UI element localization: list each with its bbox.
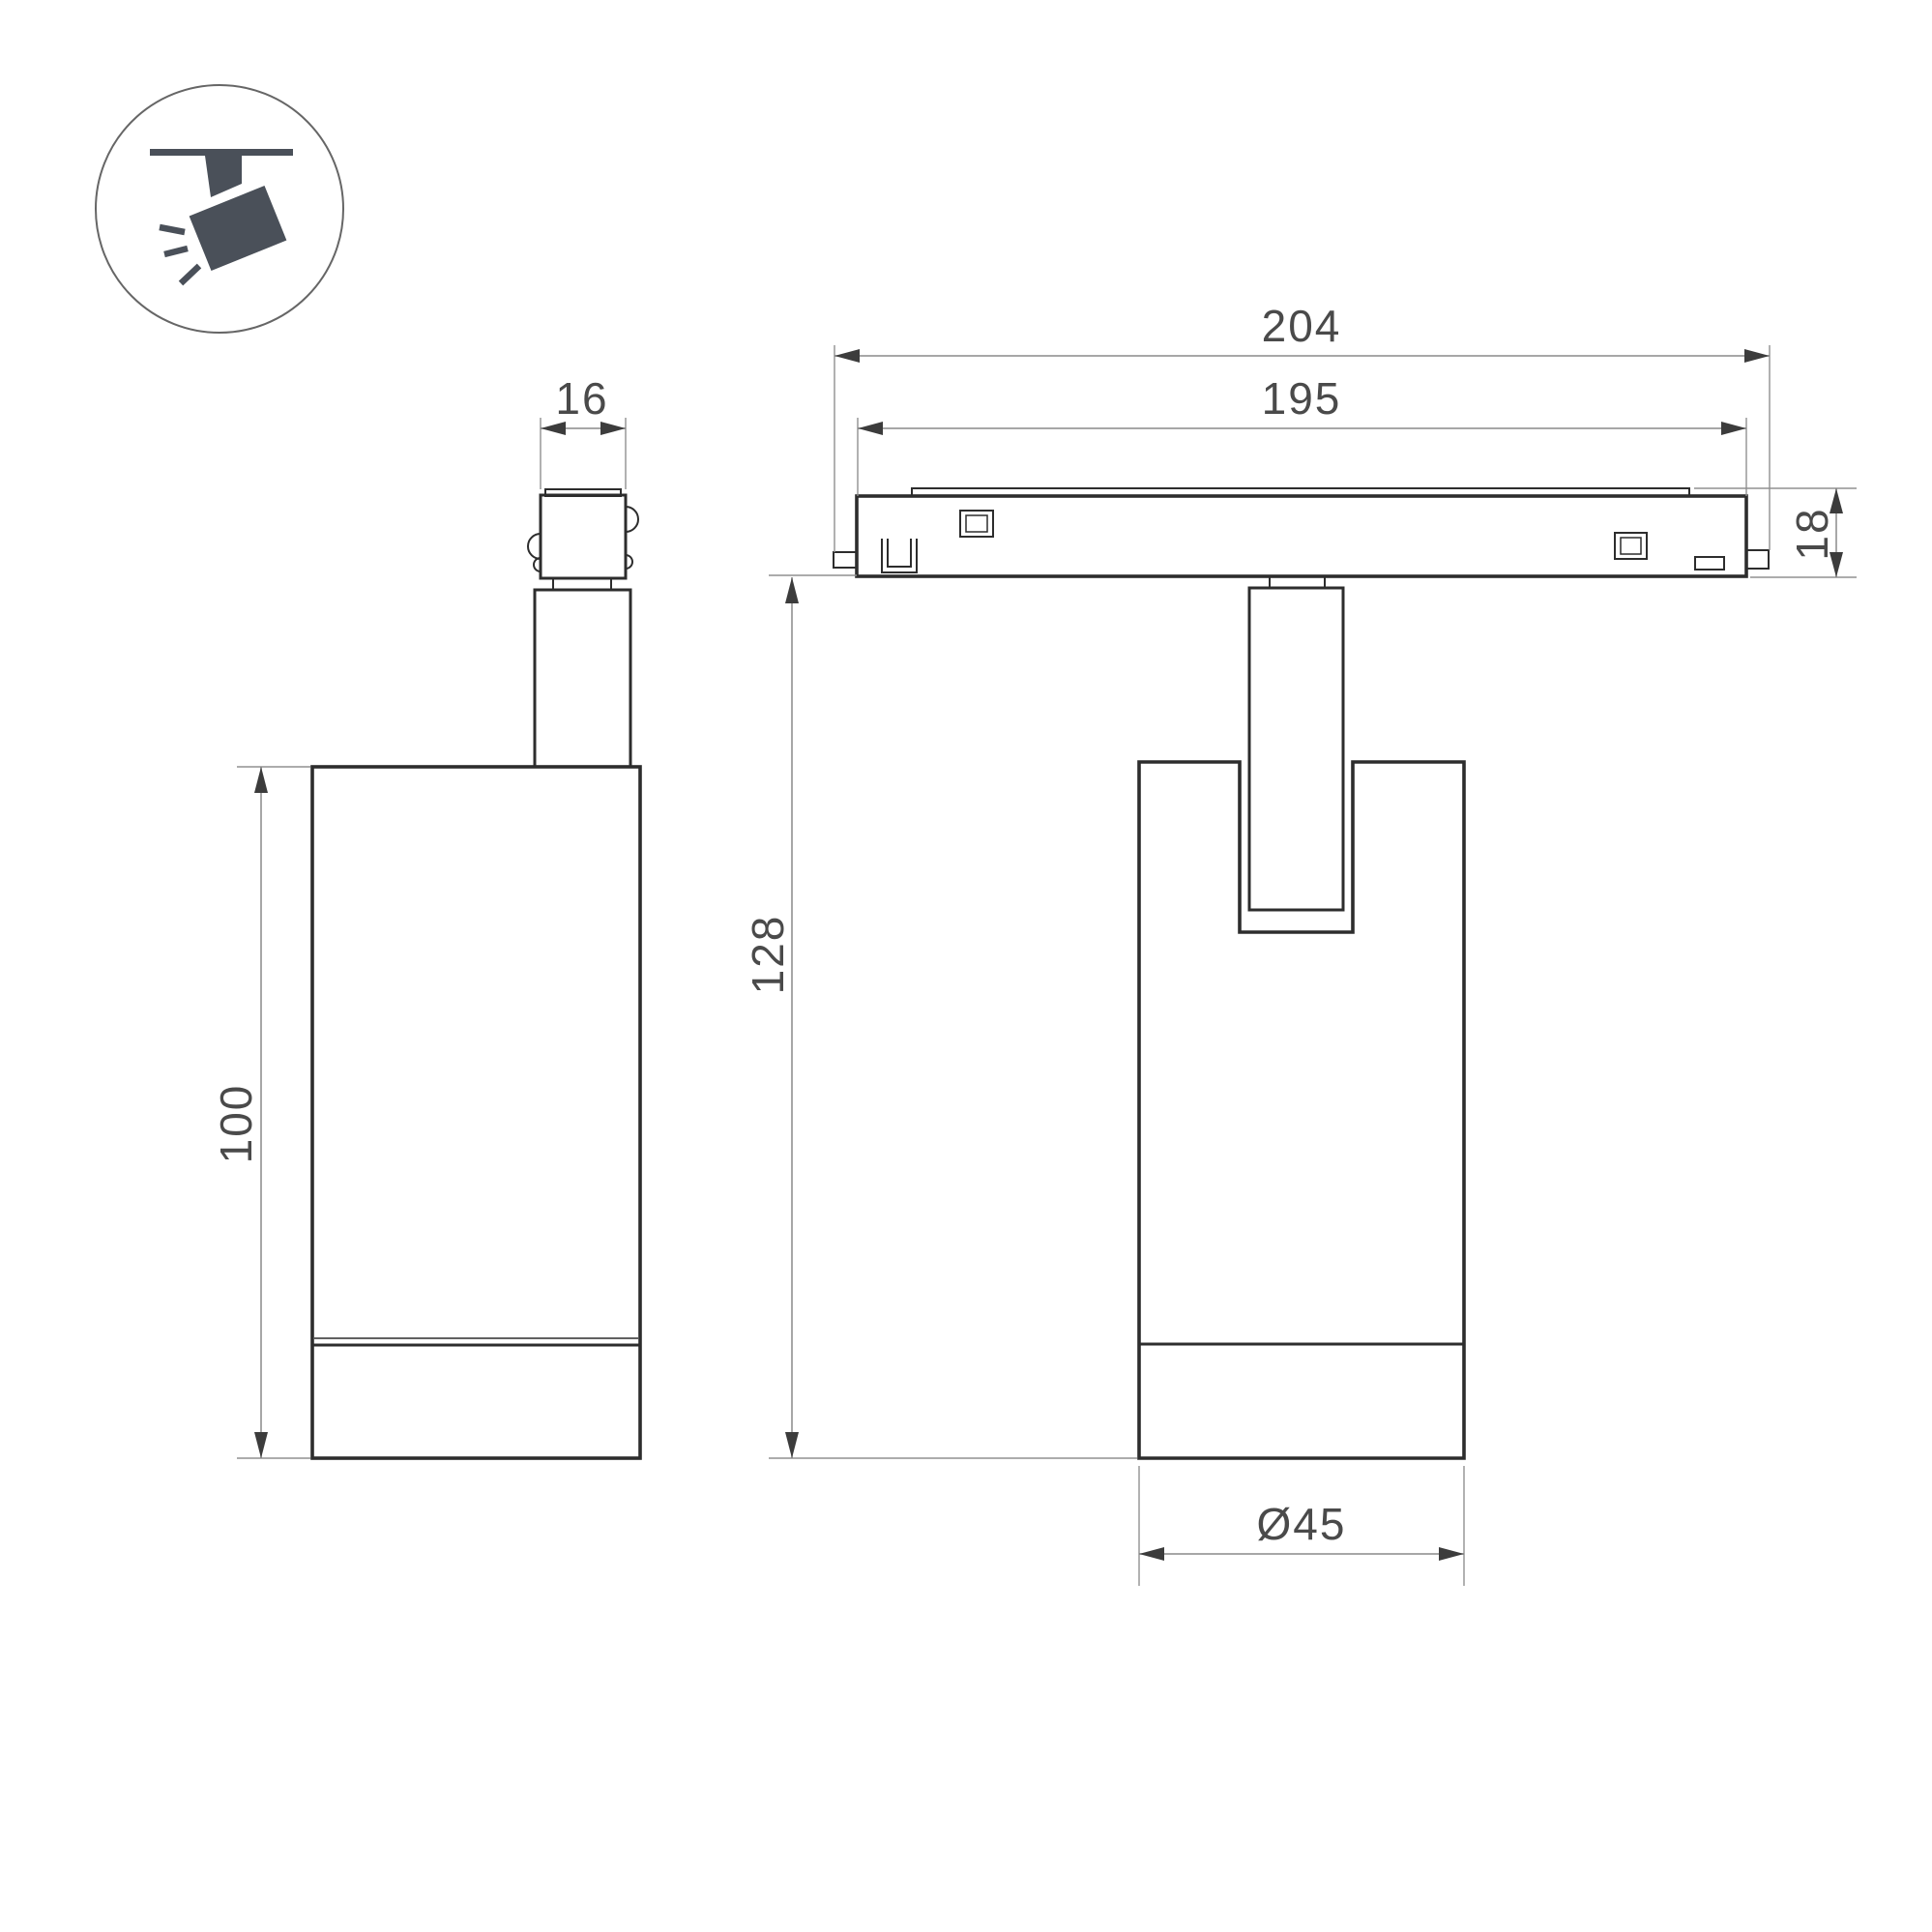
dim-body-diameter: Ø45 xyxy=(1139,1466,1464,1586)
dim-label-16: 16 xyxy=(555,373,608,424)
dim-track-outer: 204 xyxy=(834,301,1770,552)
front-stem xyxy=(1249,588,1343,910)
track-detail-left-inner xyxy=(966,515,987,532)
dim-track-inner: 195 xyxy=(858,373,1746,496)
track-detail-flat xyxy=(1695,557,1724,570)
icon-light-ray xyxy=(164,249,188,254)
side-stem xyxy=(535,590,630,767)
track-detail-left-outer xyxy=(960,511,993,537)
dim-label-diameter-45: Ø45 xyxy=(1257,1499,1347,1549)
dim-label-100: 100 xyxy=(211,1084,261,1164)
track-spotlight-icon xyxy=(150,149,293,283)
icon-light-ray xyxy=(181,266,199,283)
dimensions: 16 100 204 195 xyxy=(211,301,1857,1586)
dim-label-195: 195 xyxy=(1262,373,1342,424)
technical-drawing-canvas: 16 100 204 195 xyxy=(0,0,1932,1932)
track-end-tab-left xyxy=(834,552,857,568)
dim-adapter-width: 16 xyxy=(541,373,626,489)
track-end-tab-right xyxy=(1746,550,1769,569)
side-spring-clip-left xyxy=(528,534,541,559)
side-view xyxy=(312,489,640,1458)
side-neck xyxy=(553,578,611,590)
icon-mount-stem xyxy=(205,156,242,197)
track-detail-right-outer xyxy=(1615,533,1647,559)
icon-lamp-body xyxy=(190,186,287,271)
side-track-adapter xyxy=(541,495,626,578)
icon-ceiling-bar xyxy=(150,149,293,156)
dim-total-height: 128 xyxy=(743,575,1137,1458)
track-contact-clip xyxy=(882,539,917,572)
side-spring-clip-right xyxy=(626,507,638,532)
dim-body-height: 100 xyxy=(211,767,310,1458)
front-view xyxy=(834,488,1769,1458)
dim-label-204: 204 xyxy=(1262,301,1342,351)
track-detail-right-inner xyxy=(1621,538,1641,554)
front-body-with-notch xyxy=(1139,762,1464,1458)
dim-label-18: 18 xyxy=(1787,507,1837,560)
dim-label-128: 128 xyxy=(743,915,793,995)
corner-pictogram xyxy=(96,85,343,333)
icon-light-ray xyxy=(160,227,185,232)
side-body xyxy=(312,767,640,1458)
dim-track-height: 18 xyxy=(1694,488,1857,577)
